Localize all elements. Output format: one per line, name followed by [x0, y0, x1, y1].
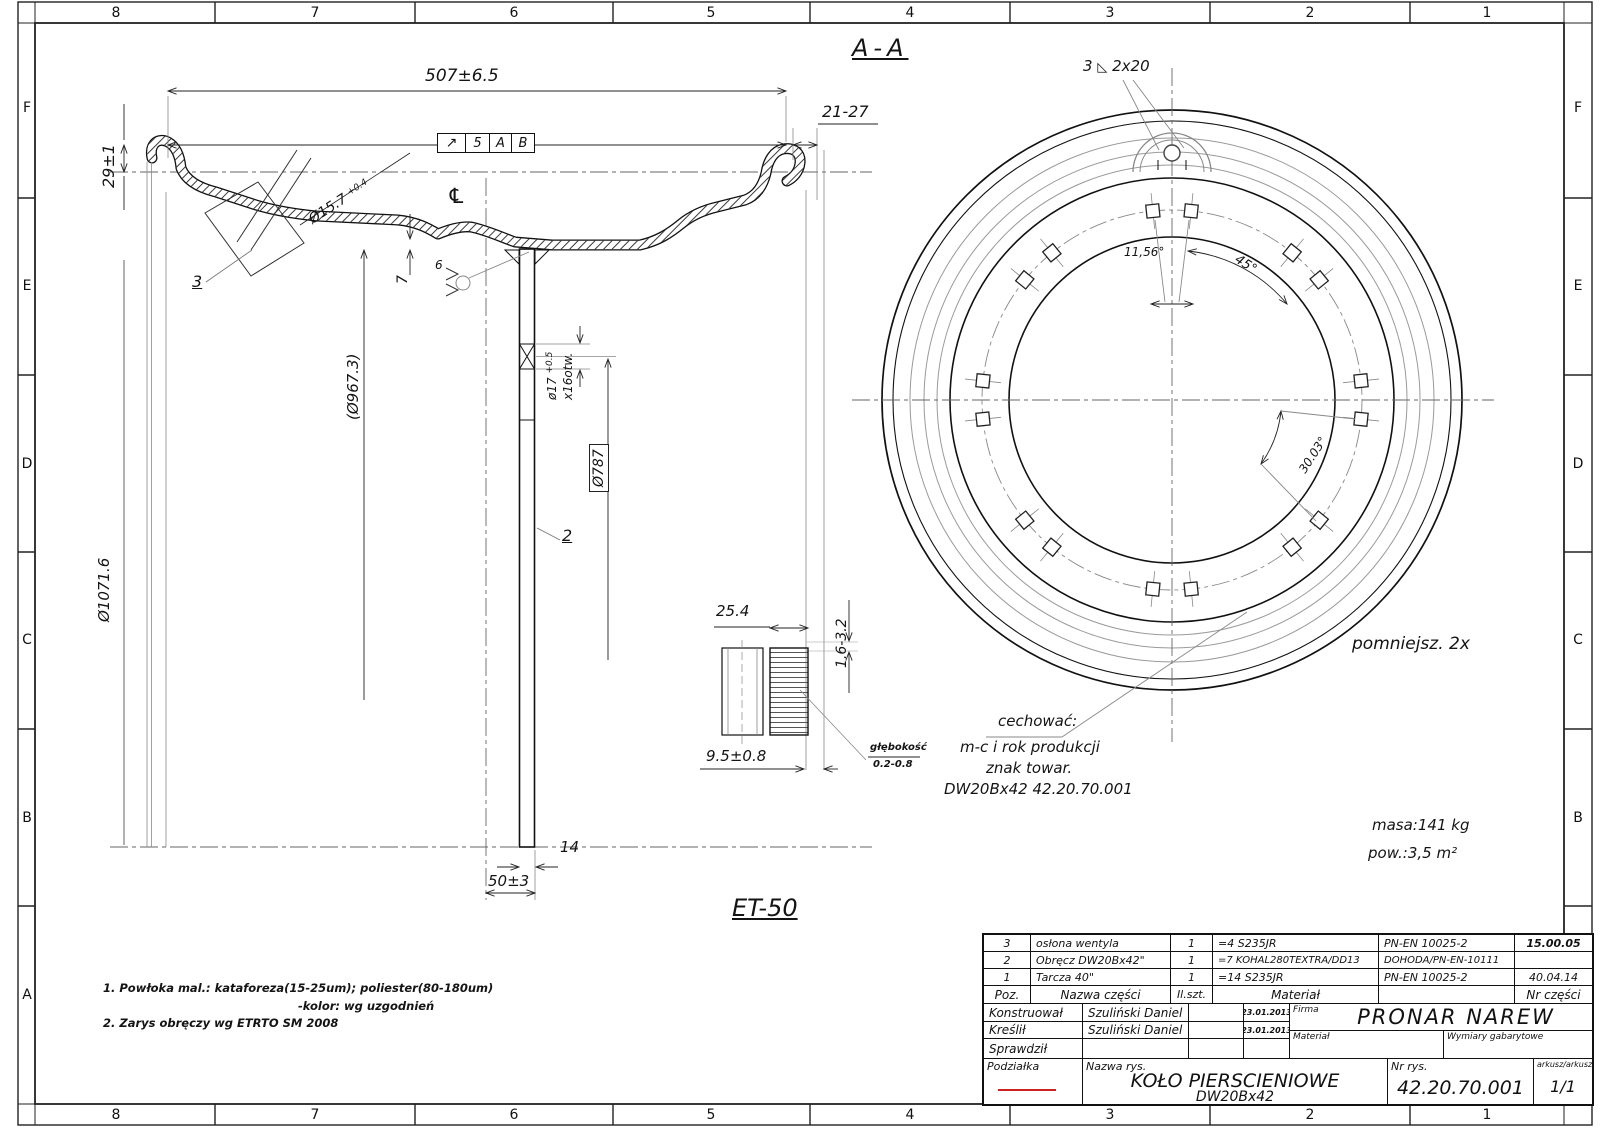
note-coating: 1. Powłoka mal.: kataforeza(15-25um); po… — [103, 981, 493, 995]
weld-size-label: 6 — [435, 258, 443, 272]
part-row-material: =7 KOHAL280TEXTRA/DD13 — [1212, 951, 1379, 969]
part-row-name: Obręcz DW20Bx42" — [1030, 951, 1171, 969]
zone-label: 3 — [1106, 1107, 1115, 1123]
weld-note-pos: 3 — [1083, 57, 1093, 75]
drawing-name-cell: Nazwa rys. KOŁO PIERSCIENIOWE DW20Bx42 — [1082, 1058, 1388, 1105]
marking-line-3: znak towar. — [986, 759, 1072, 777]
part-row-norm: PN-EN 10025-2 — [1378, 934, 1515, 952]
weld-note-value: 2x20 — [1112, 57, 1150, 75]
zone-label: 1 — [1483, 1107, 1492, 1123]
centerline-icon: ℄ — [447, 184, 466, 208]
runout-datum-b: B — [512, 134, 534, 152]
mass-label: masa:141 kg — [1372, 816, 1469, 834]
role-label: Konstruował — [983, 1003, 1083, 1022]
zone-label: F — [23, 100, 31, 116]
part-row-poz: 2 — [983, 951, 1031, 969]
dim-hole-count: x16otw. — [561, 353, 575, 400]
scale-cell: Podziałka — [983, 1058, 1083, 1105]
part-row-number — [1514, 951, 1593, 969]
balloon-guard: 3 — [192, 272, 202, 291]
zone-label: D — [22, 456, 33, 472]
role-signature — [1188, 1003, 1244, 1022]
company-cell: Firma PRONAR NAREW — [1289, 1003, 1593, 1031]
dim-detail-width: 25.4 — [716, 602, 749, 620]
material-cell: Materiał — [1289, 1030, 1444, 1059]
role-date — [1243, 1038, 1290, 1059]
zone-label: 7 — [311, 5, 320, 21]
zone-label: B — [1573, 810, 1583, 826]
zone-label: C — [1573, 632, 1583, 648]
note-etrto: 2. Zarys obręczy wg ETRTO SM 2008 — [103, 1016, 338, 1030]
marking-line-1: cechować: — [998, 712, 1077, 730]
company-name: PRONAR NAREW — [1320, 1004, 1592, 1030]
hole-tol: +0.5 — [545, 352, 555, 374]
role-name: Szuliński Daniel — [1082, 1003, 1189, 1022]
runout-datum-a: A — [490, 134, 512, 152]
dim-bolt-circle: Ø787 — [589, 444, 609, 492]
role-date: 23.01.2013 — [1243, 1003, 1290, 1022]
part-row-qty: 1 — [1170, 934, 1213, 952]
zone-label: B — [22, 810, 32, 826]
parts-header-poz: Poz. — [983, 985, 1031, 1004]
zone-label: 6 — [510, 1107, 519, 1123]
balloon-disc: 2 — [562, 526, 572, 545]
section-view-title: A-A — [852, 34, 909, 62]
part-row-number: 40.04.14 — [1514, 968, 1593, 986]
zone-label: 2 — [1306, 1107, 1315, 1123]
depth-range: 0.2-0.8 — [873, 759, 913, 770]
zone-label: E — [23, 278, 32, 294]
zone-label: 8 — [112, 5, 121, 21]
part-row-material: =4 S235JR — [1212, 934, 1379, 952]
part-row-material: =14 S235JR — [1212, 968, 1379, 986]
zone-label: C — [22, 632, 32, 648]
dim-rim-width: 507±6.5 — [425, 66, 499, 86]
dim-offset: 50±3 — [488, 872, 529, 890]
part-row-number: 15.00.05 — [1514, 934, 1593, 952]
role-label: Kreślił — [983, 1021, 1083, 1039]
depth-label: głębokość — [870, 742, 927, 753]
parts-header-number: Nr części — [1514, 985, 1593, 1004]
dim-rim-diameter: (Ø967.3) — [344, 354, 362, 420]
scale-red-line — [998, 1089, 1056, 1091]
parts-header-spacer — [1378, 985, 1515, 1004]
sheet-label: arkusz/arkuszy — [1537, 1060, 1593, 1069]
angle-pair-label: 11,56° — [1124, 245, 1164, 259]
sheet-value: 1/1 — [1534, 1073, 1592, 1099]
scale-label: Podziałka — [987, 1060, 1039, 1073]
runout-icon: ↗ — [438, 134, 466, 152]
part-row-poz: 1 — [983, 968, 1031, 986]
zone-label: F — [1574, 100, 1582, 116]
role-date: 23.01.2013 — [1243, 1021, 1290, 1039]
dim-disc-gap: 7 — [395, 275, 411, 284]
zone-label: 6 — [510, 5, 519, 21]
dim-outer-diameter: Ø1071.6 — [95, 558, 113, 622]
zone-label: 5 — [707, 1107, 716, 1123]
hole-dia: ø17 — [545, 377, 559, 400]
runout-value: 5 — [466, 134, 490, 152]
drawing-sheet: 8 7 6 5 4 3 2 1 8 7 6 5 4 3 2 1 F E D C … — [0, 0, 1600, 1130]
dim-flange-lip: 21-27 — [822, 102, 869, 121]
weld-triangle-icon: ◺ — [1097, 60, 1107, 75]
part-row-norm: DOHODA/PN-EN-10111 — [1378, 951, 1515, 969]
zone-label: 7 — [311, 1107, 320, 1123]
zone-label: 1 — [1483, 5, 1492, 21]
parts-header-qty: Il.szt. — [1170, 985, 1213, 1004]
dim-flange-height: 29±1 — [99, 144, 118, 188]
weld-note: 3 ◺ 2x20 — [1083, 57, 1150, 75]
zone-label: 4 — [906, 1107, 915, 1123]
dim-disc-thickness: 14 — [560, 838, 579, 856]
role-name: Szuliński Daniel — [1082, 1021, 1189, 1039]
zone-label: 8 — [112, 1107, 121, 1123]
overall-dims-label: Wymiary gabarytowe — [1447, 1032, 1543, 1042]
dim-detail-depth: 9.5±0.8 — [706, 747, 766, 765]
dim-groove: 1.6-3.2 — [834, 618, 850, 668]
parts-header-material: Materiał — [1212, 985, 1379, 1004]
part-row-name: Tarcza 40" — [1030, 968, 1171, 986]
zone-label: 4 — [906, 5, 915, 21]
zone-label: 2 — [1306, 5, 1315, 21]
marking-line-2: m-c i rok produkcji — [960, 738, 1100, 756]
part-row-poz: 3 — [983, 934, 1031, 952]
role-signature — [1188, 1021, 1244, 1039]
zone-label: D — [1573, 456, 1584, 472]
zone-label: 3 — [1106, 5, 1115, 21]
role-name — [1082, 1038, 1189, 1059]
note-coating-color: -kolor: wg uzgodnień — [298, 999, 434, 1013]
marking-line-4: DW20Bx42 42.20.70.001 — [944, 780, 1133, 798]
material-label: Materiał — [1293, 1032, 1330, 1042]
drawing-name-sub: DW20Bx42 — [1083, 1089, 1387, 1105]
scale-note: pomniejsz. 2x — [1352, 634, 1470, 654]
offset-designation: ET-50 — [732, 894, 798, 922]
overall-dims-cell: Wymiary gabarytowe — [1443, 1030, 1593, 1059]
part-row-name: osłona wentyla — [1030, 934, 1171, 952]
part-row-norm: PN-EN 10025-2 — [1378, 968, 1515, 986]
part-row-qty: 1 — [1170, 968, 1213, 986]
parts-header-name: Nazwa części — [1030, 985, 1171, 1004]
zone-label: E — [1574, 278, 1583, 294]
part-row-qty: 1 — [1170, 951, 1213, 969]
drawing-number-label: Nr rys. — [1391, 1060, 1428, 1073]
company-label: Firma — [1293, 1005, 1319, 1015]
sheet-cell: arkusz/arkuszy 1/1 — [1533, 1058, 1593, 1105]
drawing-number: 42.20.70.001 — [1388, 1075, 1533, 1101]
zone-label: 5 — [707, 5, 716, 21]
title-block: 3 osłona wentyla 1 =4 S235JR PN-EN 10025… — [982, 933, 1594, 1106]
runout-tolerance-frame: ↗ 5 A B — [437, 133, 535, 153]
drawing-number-cell: Nr rys. 42.20.70.001 — [1387, 1058, 1534, 1105]
dim-hole-diameter: ø17 +0.5 — [545, 352, 559, 400]
zone-label: A — [22, 987, 32, 1003]
role-label: Sprawdził — [983, 1038, 1083, 1059]
surface-label: pow.:3,5 m² — [1368, 844, 1457, 862]
role-signature — [1188, 1038, 1244, 1059]
